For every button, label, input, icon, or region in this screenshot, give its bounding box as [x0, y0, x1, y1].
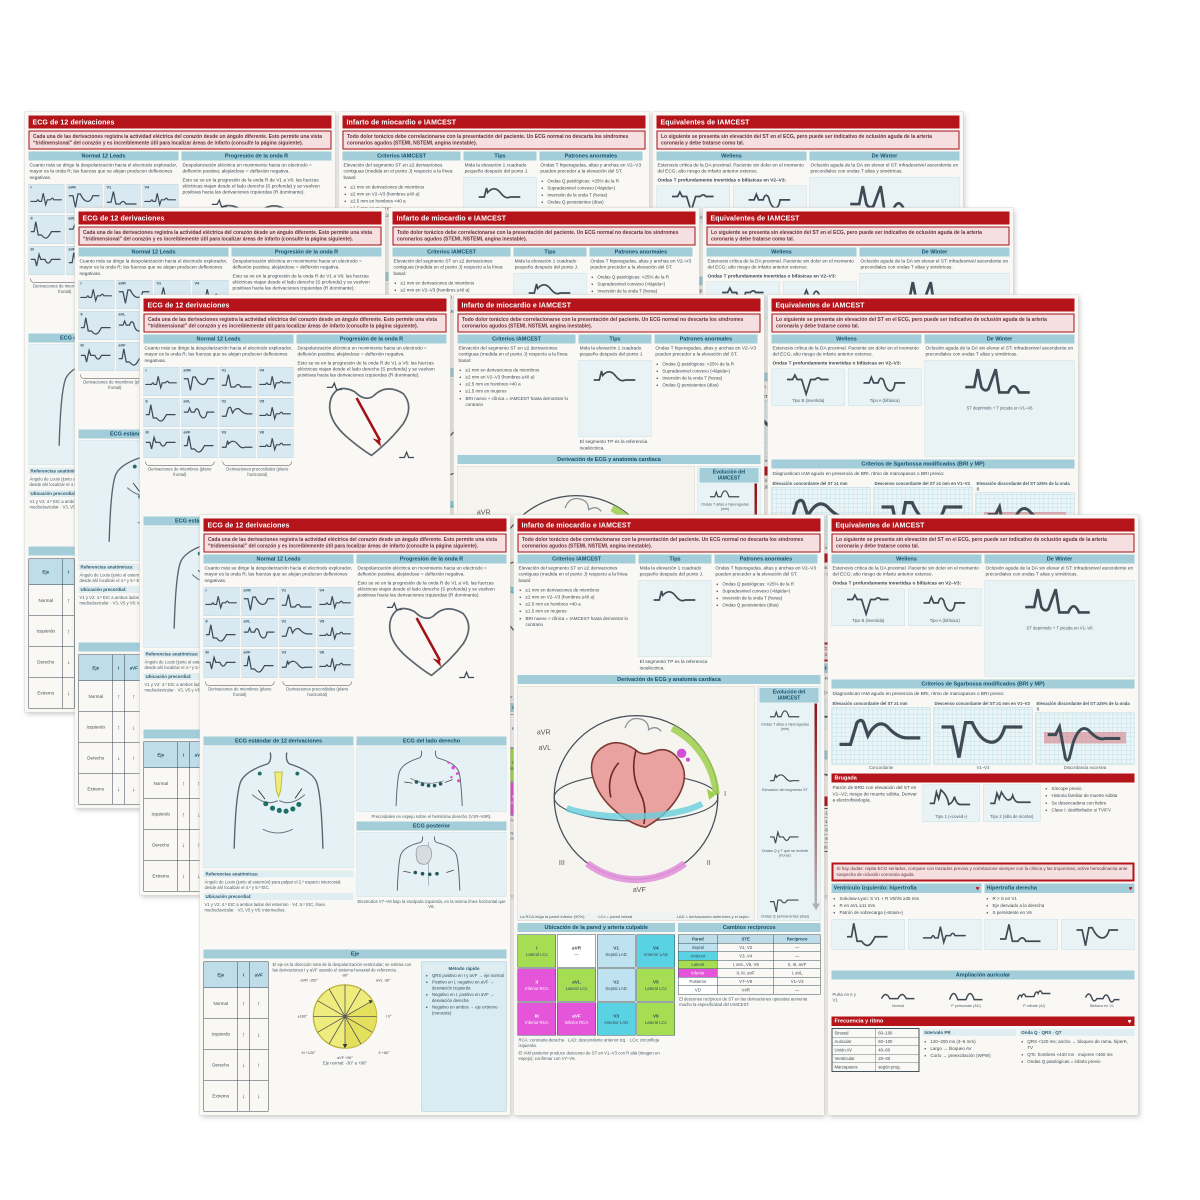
lead-label: aVR — [572, 945, 581, 951]
table-row: Izquierdo↑↓ — [204, 1019, 269, 1050]
card-title-bar: Equivalentes de IAMCEST — [832, 519, 1135, 532]
wellens-examples: Tipo B (invertida) Tipo A (bifásica) — [772, 369, 922, 406]
table-cell: Sinusal — [832, 1028, 876, 1037]
brace-shape — [283, 682, 352, 687]
brace-caption: Derivaciones de miembros (plano frontal) — [205, 687, 276, 698]
list-item: Supradesnivel convexo («lápida») — [662, 368, 757, 374]
caption: Tipo 1 («coved») — [935, 814, 967, 819]
table-cell: — — [774, 952, 820, 961]
criteria-list: ≥1 mm en derivaciones de miembros ≥2 mm … — [460, 367, 576, 408]
list-item: Ondas Q persistentes (días) — [547, 199, 642, 205]
section-header: Tips — [579, 335, 652, 344]
paragraph: Elevación del segmento ST en ≥2 derivaci… — [459, 346, 575, 365]
lead-label: I — [536, 945, 537, 951]
section-header: Wellens — [832, 555, 982, 564]
card-intro: Lo siguiente se presenta sin elevación d… — [657, 131, 960, 150]
ecg-lead-box: III — [204, 649, 240, 678]
table-row: Pared STE Recíproco — [678, 935, 820, 944]
ecg-waveform-icon — [319, 653, 352, 676]
sgarbossa-panel: Descenso concordante del ST ≥1 mm en V1–… — [934, 701, 1033, 771]
torso-right-panel — [357, 747, 507, 812]
table-header-cell: Eje — [204, 962, 238, 988]
lvh-examples — [832, 919, 982, 950]
rate-band: Frecuencia y ritmo♥ — [832, 1016, 1135, 1026]
section-header: Criterios IAMCEST — [393, 248, 511, 257]
list-item: ≥2 mm en V2–V3 (hombres ≥40 a) — [351, 191, 461, 197]
list-item: QTc: hombres <440 ms · mujeres <460 ms — [1027, 1052, 1134, 1058]
wall-label: Lateral LCx — [526, 952, 548, 957]
paragraph: Estenosis crítica de la DA proximal. Pac… — [708, 259, 856, 271]
waveform-box — [908, 919, 982, 950]
pie-caption: Eje normal: -30° a +90° — [323, 1061, 367, 1066]
list-item: 120–200 ms (3–5 mm) — [930, 1038, 1016, 1044]
ecg-lead-box: V6 — [318, 649, 354, 678]
pie-label: aVR -150° — [301, 978, 318, 983]
table-cell: 60–100 — [876, 1037, 919, 1046]
ecg-waveform-icon — [205, 591, 238, 614]
table-cell: Lateral — [678, 960, 717, 969]
table-cell: ↑ — [238, 988, 249, 1019]
paragraph: Cuanto más se dirige la despolarización … — [145, 346, 293, 365]
table-cell: ↑ — [178, 768, 189, 799]
section-header: Ubicación de la pared y arteria culpable — [518, 923, 676, 932]
table-row: Sinusal60–100 — [832, 1028, 919, 1037]
wellens-examples: Tipo B (invertida) Tipo A (bifásica) — [832, 589, 982, 626]
hexaxial-diagram: El eje es la dirección neta de la despol… — [272, 962, 419, 1112]
table-cell: Extremo — [144, 860, 178, 891]
caption: Discordancia excesiva — [1037, 765, 1134, 770]
ecg-waveform-icon — [259, 402, 292, 425]
list-item: Negativo en ambos → eje extremo (noroest… — [432, 1005, 504, 1016]
grid-cell: V1Septal LAD — [597, 935, 636, 968]
card-title-bar: ECG de 12 derivaciones — [204, 519, 507, 532]
ecg-lead-box: V4 — [318, 587, 354, 616]
paragraph: Esto se ve en la progresión de la onda R… — [183, 177, 331, 196]
evolution-item: Ondas Q permanentes (días) — [760, 894, 811, 919]
list-item: Inversión de la onda T (horas) — [597, 288, 692, 294]
waveform-box: Tipo 1 («coved») — [922, 785, 980, 822]
table-row: Auricular60–100 — [832, 1037, 919, 1046]
ecg-lead-box: II — [144, 398, 180, 427]
table-cell: Anterior — [678, 952, 717, 961]
ecg-lead-box: V3 — [220, 429, 256, 458]
table-cell: ↓ — [238, 1080, 249, 1111]
section-header: Wellens — [772, 335, 922, 344]
card-title: Equivalentes de IAMCEST — [836, 521, 925, 529]
table-cell: ↓ — [113, 773, 124, 804]
ecg-lead-box: V6 — [258, 429, 294, 458]
section-header: Criterios IAMCEST — [343, 152, 461, 161]
caption: Concordante — [833, 765, 930, 770]
lvh-column: Ventrículo izquierdo: hipertrofia♥ Sokol… — [832, 883, 982, 967]
list-item: ≥2.5 mm en hombres <40 a — [351, 198, 461, 204]
card-intro: Lo siguiente se presenta sin elevación d… — [707, 227, 1010, 246]
p-wave-item: P mitrale (AI) — [1002, 986, 1067, 1009]
twelve-lead-grid: I aVR V1 V4 II aVL V2 V5 III aVF V3 V6 — [204, 587, 354, 678]
paragraph: Patrón de BRD con elevación del ST en V1… — [833, 785, 919, 804]
caption-header: Ubicación precordial: — [204, 893, 354, 900]
ecg-waveform-icon — [183, 433, 216, 456]
section-header: De Winter — [985, 555, 1135, 564]
brace-caption: Derivaciones precordiales (plano horizon… — [282, 687, 353, 698]
heart-anatomy-section: La RCA irriga la pared inferior (90%) LC… — [518, 686, 821, 921]
table-row: Derecho↓↑ — [204, 1050, 269, 1081]
card-title: ECG de 12 derivaciones — [208, 521, 290, 529]
axis-intro-text: El eje es la dirección neta de la despol… — [273, 962, 418, 973]
grid-cell: aVR— — [557, 935, 596, 968]
rate-band-label: Frecuencia y ritmo — [835, 1018, 884, 1024]
caption: Tipo A (bifásica) — [930, 618, 960, 623]
list-item: ≥2.5 mm en hombres <40 a — [466, 381, 576, 387]
table-cell: Septal — [678, 943, 717, 952]
lead-group-braces: Derivaciones de miembros (plano frontal)… — [204, 682, 354, 698]
lead-group-braces: Derivaciones de miembros (plano frontal)… — [144, 462, 294, 478]
brugada-examples: Tipo 1 («coved») Tipo 2 (silla de montar… — [922, 785, 1040, 822]
waveform-box — [832, 919, 906, 950]
grid-cell: V5Lateral LCx — [636, 969, 675, 1002]
rate-table: Sinusal60–100 Auricular60–100 Unión AV40… — [832, 1028, 920, 1072]
wall-label: Inferior RCA — [565, 1020, 588, 1025]
infobox-title: Método rápido — [424, 965, 504, 972]
section-header: Progresión de la onda R — [182, 152, 332, 161]
list-item: Historia familiar de muerte súbita — [1052, 793, 1132, 799]
list-item: Sokolow-Lyon: S V1 + R V5/V6 ≥35 mm — [840, 895, 982, 901]
table-header-cell: I — [238, 962, 249, 988]
criterion-text: Elevación discordante del ST ≥25% de la … — [977, 481, 1074, 492]
pie-label: aVF +90° — [337, 1056, 353, 1061]
caption: P mitrale (AI) — [1023, 1004, 1045, 1009]
ecg-lead-box: III — [144, 429, 180, 458]
paragraph: Elevación del segmento ST en ≥2 derivaci… — [344, 163, 460, 182]
paragraph: Cuanto más se dirige la despolarización … — [205, 566, 353, 585]
caption: Ondas Q permanentes (días) — [761, 914, 810, 919]
patterns-list: Ondas Q patológicas: >25% de la R Suprad… — [541, 178, 642, 206]
section-header: Criterios IAMCEST — [518, 555, 636, 564]
ecg-waveform-icon — [80, 346, 113, 369]
twelve-lead-grid: I aVR V1 V4 II aVL V2 V5 III aVF V3 V6 — [144, 367, 294, 458]
hexaxial-pie: -90° aVR -150° aVL -30° ±180° I 0° III +… — [298, 973, 393, 1060]
lead-label: V2 — [613, 979, 619, 985]
table-cell: Extremo — [79, 773, 113, 804]
wall-label: Septal LAD — [605, 952, 627, 957]
ecg-waveform-icon — [221, 433, 254, 456]
paragraph: Diagnostican IAM agudo en presencia de B… — [773, 471, 1074, 477]
lead-overview-section: Normal 12 Leads Cuanto más se dirige la … — [204, 555, 507, 735]
list-item: ≥1 mm en derivaciones de miembros — [466, 367, 576, 373]
footnote: RCA: coronaria derecha · LAD: descendent… — [519, 1038, 675, 1049]
ecg-waveform-icon — [80, 284, 113, 307]
wellens-dewinter-section: Wellens Estenosis crítica de la DA proxi… — [832, 555, 1135, 677]
section-header: Progresión de la onda R — [357, 555, 507, 564]
ecg-grid-panel — [934, 707, 1033, 764]
table-cell: 40–60 — [876, 1046, 919, 1055]
pie-label: II +60° — [379, 1051, 390, 1056]
lvh-header: Ventrículo izquierdo: hipertrofia — [834, 885, 917, 891]
ecg-grid-panel — [832, 707, 931, 764]
p-wave-item: Normal — [866, 986, 931, 1009]
table-cell: ↓ — [238, 1050, 249, 1081]
table-cell: V1, V2 — [717, 943, 774, 952]
pie-label: I 0° — [386, 1014, 392, 1019]
ecg-waveform-icon — [855, 371, 915, 398]
reciprocal-changes-column: Cambios recíprocos Pared STE Recíproco S… — [678, 923, 820, 1088]
criterion-text: Descenso concordante del ST ≥1 mm en V1–… — [935, 701, 1032, 706]
table-cell: V7–V9 — [717, 977, 774, 986]
list-item: ≥1 mm en derivaciones de miembros — [401, 280, 511, 286]
list-item: ≥1.5 mm en mujeres — [466, 388, 576, 394]
table-row: Marcapasossegún prog. — [832, 1063, 919, 1072]
caption: V1–V3 — [935, 765, 1032, 770]
brugada-text-column: Patrón de BRD con elevación del ST en V1… — [832, 785, 920, 860]
table-cell: Izquierdo — [79, 712, 113, 743]
list-item: Ondas Q patológicas: >25% de la R — [597, 274, 692, 280]
section-header: Hipertrofia derecha♥ — [985, 883, 1135, 893]
wall-label: Anterior LAD — [604, 1020, 628, 1025]
torso-front-panel — [204, 747, 354, 868]
table-header-cell: Pared — [678, 935, 717, 944]
sgarbossa-panel: Elevación concordante del ST ≥1 mm Conco… — [832, 701, 931, 771]
heart-vector-diagram — [304, 381, 439, 466]
limb-leads-brace: Derivaciones de miembros (plano frontal) — [144, 462, 217, 478]
card-title-bar: ECG de 12 derivaciones — [29, 116, 332, 129]
list-item: Clase I: desfibrilador si TV/FV — [1052, 807, 1132, 813]
table-row: Extremo↓↓ — [79, 773, 144, 804]
criteria-section: Criterios IAMCEST Elevación del segmento… — [458, 335, 761, 453]
pr-header: Intervalo PR — [922, 1029, 1016, 1036]
table-row: Derecho↓↑ — [144, 830, 209, 861]
rvh-examples — [985, 919, 1135, 950]
pie-label: ±180° — [298, 1014, 308, 1019]
lead-label: V3 — [613, 1013, 619, 1019]
card-intro: Todo dolor torácico debe correlacionarse… — [393, 227, 696, 246]
card-intro: Lo siguiente se presenta sin elevación d… — [772, 314, 1075, 333]
wall-label: Lateral LCx — [566, 986, 588, 991]
table-header-cell: aVF — [249, 962, 268, 988]
list-item: Ondas Q patológicas: >25% de la R — [547, 178, 642, 184]
caption: Normal — [892, 1004, 904, 1009]
infobox-list: QRS positivo en I y aVF → eje normal Pos… — [426, 973, 504, 1016]
table-row: Eje I aVF — [144, 742, 209, 768]
table-cell: ↓ — [113, 743, 124, 774]
card-ecg-12-derivaciones: ECG de 12 derivaciones Cada una de las d… — [200, 515, 510, 1115]
table-row: Ventricular20–40 — [832, 1054, 919, 1063]
table-cell: ↑ — [238, 1019, 249, 1050]
table-row: Extremo↓↓ — [144, 860, 209, 891]
table-header-cell: I — [63, 559, 74, 585]
waveform-box — [1061, 919, 1135, 950]
list-item: ≥1.5 mm en mujeres — [526, 608, 636, 614]
ecg-waveform-icon — [470, 179, 529, 206]
table-cell: ↓ — [63, 677, 74, 708]
lead-label: V1 — [613, 945, 619, 951]
r-wave-progression-column: Progresión de la onda R Despolarización … — [297, 335, 447, 515]
table-header-cell: Recíproco — [774, 935, 820, 944]
footnote: El IAM posterior produce descenso de ST … — [519, 1051, 675, 1062]
sgarbossa-panel: Elevación discordante del ST ≥25% de la … — [1036, 701, 1135, 771]
list-item: BRI nuevo + clínica = IAMCEST hasta demo… — [526, 615, 636, 627]
patterns-list: Ondas Q patológicas: >25% de la R Suprad… — [656, 361, 757, 389]
caption: Precordiales en espejo sobre el hemitóra… — [358, 814, 506, 819]
ecg-lead-box: V2 — [280, 618, 316, 647]
ecg-waveform-icon — [769, 768, 801, 787]
table-header-cell: Eje — [29, 559, 63, 585]
section-header: De Winter — [810, 152, 960, 161]
section-header: ECG posterior — [357, 821, 507, 830]
table-cell: V4R — [717, 986, 774, 995]
heart-icon: ♥ — [976, 885, 980, 892]
criterion-text: Elevación concordante del ST ≥1 mm — [833, 701, 930, 706]
ecg-waveform-icon — [937, 362, 1063, 405]
rvh-column: Hipertrofia derecha♥ R > S en V1 Eje des… — [985, 883, 1135, 967]
wall-label: — — [574, 952, 578, 957]
evolution-header: Evolución del IAMCEST — [700, 468, 759, 483]
rate-table-column: Sinusal60–100 Auricular60–100 Unión AV40… — [832, 1028, 920, 1112]
section-header: Patrones anormales — [654, 335, 757, 344]
list-item: R > S en V1 — [993, 895, 1135, 901]
evolution-list: Ondas T altas e hiperagudas (min) Elevac… — [760, 703, 819, 920]
ecg-waveform-icon — [259, 433, 292, 456]
table-cell: Auricular — [832, 1037, 876, 1046]
lead-label: II — [536, 979, 539, 985]
lead-label: V4 — [653, 945, 659, 951]
card-title: Infarto de miocardio e IAMCEST — [522, 521, 632, 529]
brugada-bullets-column: Síncope previo Historia familiar de muer… — [1044, 785, 1132, 860]
caption: ST deprimido + T picuda en V1–V6 — [966, 405, 1032, 410]
localization-section: Ubicación de la pared y arteria culpable… — [518, 923, 821, 1088]
table-header-cell: STE — [717, 935, 774, 944]
ecg-lead-box: II — [204, 618, 240, 647]
wellens-dewinter-section: Wellens Estenosis crítica de la DA proxi… — [772, 335, 1075, 457]
hypertrophy-section: Ventrículo izquierdo: hipertrofia♥ Sokol… — [832, 883, 1135, 967]
wall-label: Anterior LAD — [644, 952, 668, 957]
section-header: De Winter — [925, 335, 1075, 344]
card-intro: Todo dolor torácico debe correlacionarse… — [458, 314, 761, 333]
wellens-column: Wellens Estenosis crítica de la DA proxi… — [832, 555, 982, 677]
caption: Ondas Q y T que se invierte (horas) — [761, 848, 810, 857]
card-equivalentes-iamcest: Equivalentes de IAMCEST Lo siguiente se … — [828, 515, 1138, 1115]
caption-header: Referencias anatómicas: — [204, 871, 354, 878]
ecg-waveform-icon — [145, 371, 178, 394]
sgarbossa-band: Criterios de Sgarbossa modificados (BRI … — [772, 460, 1075, 469]
paragraph: Ondas T hiperagudas, altas y anchas en V… — [590, 259, 691, 271]
reciprocal-table: Pared STE Recíproco SeptalV1, V2— Anteri… — [678, 935, 820, 995]
ecg-waveform-icon — [991, 921, 1051, 948]
ecg-waveform-icon — [205, 653, 238, 676]
table-cell: Normal — [29, 585, 63, 616]
axis-section: Eje I aVF Normal↑↑ Izquierdo↑↓ Derecho↓↑… — [204, 962, 507, 1112]
section-header: Criterios IAMCEST — [458, 335, 576, 344]
brace-caption: Derivaciones de miembros (plano frontal) — [145, 467, 216, 478]
list-item: Ondas Q patológicas = infarto previo — [1027, 1059, 1134, 1065]
paragraph: Oclusión aguda de la DA sin elevar el ST… — [926, 346, 1074, 358]
ecg-lead-box: aVF — [242, 649, 278, 678]
tips-column: Tips Mida la elevación 1 cuadrado pequeñ… — [639, 555, 712, 673]
atrial-label: Pulso en II y V1 — [833, 992, 862, 1003]
dewinter-column: De Winter Oclusión aguda de la DA sin el… — [985, 555, 1135, 677]
p-wave-icon — [948, 986, 985, 1003]
table-cell: ↓ — [178, 860, 189, 891]
card-title-bar: Equivalentes de IAMCEST — [657, 116, 960, 129]
lead-overview-section: Normal 12 Leads Cuanto más se dirige la … — [144, 335, 447, 515]
list-item: QRS <120 ms; ancho → bloqueo de rama, hi… — [1027, 1038, 1134, 1050]
table-cell: 20–40 — [876, 1054, 919, 1063]
table-row: Unión AV40–60 — [832, 1046, 919, 1055]
localization-grid: ILateral LCx aVR— V1Septal LAD V4Anterio… — [518, 935, 676, 1036]
ecg-waveform-icon — [281, 591, 314, 614]
paragraph: Mida la elevación 1 cuadrado pequeño des… — [580, 346, 651, 358]
ecg-lead-box: V5 — [258, 398, 294, 427]
waveform-box: Tipo B (invertida) — [832, 589, 906, 626]
section-header: Normal 12 Leads — [204, 555, 354, 564]
ecg-waveform-icon — [1068, 921, 1128, 948]
list-item: ≥2 mm en V2–V3 (hombres ≥40 a) — [466, 374, 576, 380]
table-row: Extremo↓↓ — [204, 1080, 269, 1111]
caption: Tipo 2 (silla de montar) — [990, 814, 1033, 819]
st-elevation-example — [579, 360, 652, 437]
card-title: Equivalentes de IAMCEST — [661, 118, 750, 126]
criteria-list: ≥1 mm en derivaciones de miembros ≥2 mm … — [520, 587, 636, 628]
ecg-waveform-icon — [778, 371, 838, 398]
hexaxial-pie-icon — [298, 973, 393, 1060]
pie-label: aVL -30° — [376, 978, 391, 983]
table-row: Normal↑↑ — [144, 768, 209, 799]
list-item: Supradesnivel convexo («lápida») — [547, 185, 642, 191]
table-cell: Izquierdo — [144, 799, 178, 830]
table-cell: II, III, aVF — [717, 969, 774, 978]
wellens-column: Wellens Estenosis crítica de la DA proxi… — [772, 335, 922, 457]
card-title-bar: ECG de 12 derivaciones — [144, 299, 447, 312]
list-item: Supradesnivel convexo («lápida») — [597, 281, 692, 287]
table-cell: Izquierdo — [29, 616, 63, 647]
table-cell: Posterior — [678, 977, 717, 986]
ecg-waveform-icon — [936, 709, 1030, 761]
paragraph: Mida la elevación 1 cuadrado pequeño des… — [640, 566, 711, 578]
ecg-waveform-icon — [997, 582, 1123, 625]
grid-cell: IIIInferior RCA — [518, 1003, 557, 1036]
evolution-item: Ondas T altas e hiperagudas (min) — [700, 483, 751, 512]
card-iamcest: Infarto de miocardio e IAMCEST Todo dolo… — [514, 515, 824, 1115]
card-intro: Cada una de las derivaciones registra la… — [79, 227, 382, 246]
ecg-waveform-icon — [243, 653, 276, 676]
ecg-lead-box: aVL — [242, 618, 278, 647]
wall-label: Inferior RCA — [525, 986, 548, 991]
grid-cell: aVLLateral LCx — [557, 969, 596, 1002]
lead-label: V6 — [653, 1013, 659, 1019]
table-row: LateralI, aVL, V5, V6II, III, aVF — [678, 960, 820, 969]
rvh-header: Hipertrofia derecha — [987, 885, 1037, 891]
wall-label: Lateral LCx — [645, 1020, 667, 1025]
paragraph: Esto se ve en la progresión de la onda R… — [233, 273, 381, 292]
ecg-lead-box: V2 — [220, 398, 256, 427]
table-cell: — — [774, 986, 820, 995]
ecg-lead-box: V4 — [258, 367, 294, 396]
evolution-arrow-icon — [815, 704, 818, 908]
torso-back-panel — [357, 832, 507, 897]
pr-column: Intervalo PR 120–200 ms (3–5 mm) Largo →… — [922, 1028, 1016, 1112]
card-title: ECG de 12 derivaciones — [83, 214, 165, 222]
tips-column: Tips Mida la elevación 1 cuadrado pequeñ… — [579, 335, 652, 453]
list-item: Se desencadena con fiebre — [1052, 800, 1132, 806]
ecg-waveform-icon — [30, 250, 63, 273]
wall-label: Inferior RCA — [525, 1020, 548, 1025]
table-row: Normal↑↑ — [204, 988, 269, 1019]
section-header: Normal 12 Leads — [144, 335, 294, 344]
paragraph: Mida la elevación 1 cuadrado pequeño des… — [465, 163, 536, 175]
ecg-waveform-icon — [585, 362, 644, 389]
ecg-waveform-icon — [281, 622, 314, 645]
card-title: ECG de 12 derivaciones — [33, 118, 115, 126]
list-item: Positivo en I, negativo en aVF → desviac… — [432, 980, 504, 991]
